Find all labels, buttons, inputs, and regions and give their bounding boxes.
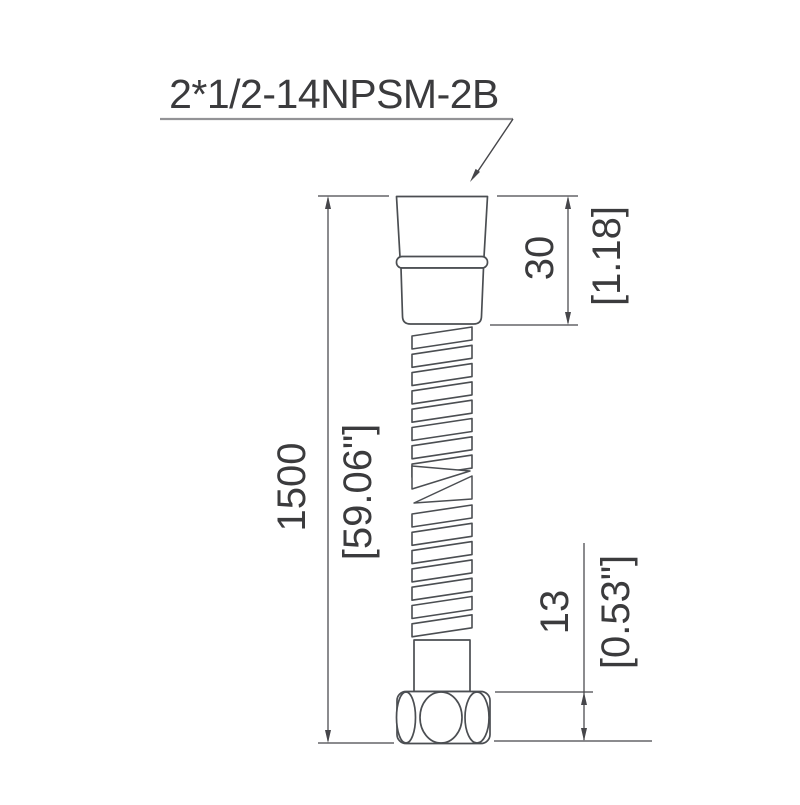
hose-band: [412, 382, 472, 404]
top-fitting-lower-cone: [401, 268, 484, 324]
part-label: 2*1/2-14NPSM-2B: [169, 71, 499, 117]
hose-band: [412, 523, 472, 545]
hose-band: [412, 327, 472, 349]
dim-nut-inch: [0.53"]: [594, 555, 638, 669]
arrow-down-icon: [565, 312, 571, 325]
dim-nut-mm: 13: [533, 590, 577, 635]
bottom-nut-facet-left: [397, 692, 416, 743]
technical-drawing-canvas: 2*1/2-14NPSM-2B 1500 [59.06"]: [0, 0, 800, 800]
hose-band: [412, 400, 472, 422]
break-symbol: [412, 466, 472, 503]
hose-band: [412, 578, 472, 600]
bottom-end: [397, 640, 491, 744]
hose-band: [412, 505, 472, 527]
top-fitting-ring: [397, 257, 488, 269]
dimension-overall-length: 1500 [59.06"]: [270, 196, 394, 743]
arrow-down-icon: [581, 728, 587, 741]
hose-band: [412, 437, 472, 459]
hose-band: [412, 560, 472, 582]
dim-fitting-inch: [1.18]: [585, 206, 629, 306]
bottom-nut-facet-center: [420, 692, 462, 743]
hose-band: [412, 345, 472, 367]
technical-drawing-page: 2*1/2-14NPSM-2B 1500 [59.06"]: [0, 0, 800, 800]
arrow-up-icon: [565, 196, 571, 209]
dimension-top-fitting: 30 [1.18]: [490, 196, 629, 325]
leader-line: [474, 119, 513, 177]
hose-band: [412, 419, 472, 441]
top-fitting: [397, 197, 488, 325]
hose-band: [412, 364, 472, 386]
part-label-group: 2*1/2-14NPSM-2B: [160, 71, 513, 182]
dim-fitting-mm: 30: [518, 236, 562, 281]
arrow-up-icon: [325, 196, 331, 209]
bottom-nut-facet-right: [465, 692, 489, 743]
hose-band: [412, 542, 472, 564]
hose-band: [412, 597, 472, 619]
hose-band: [412, 615, 472, 637]
dimension-bottom-nut: 13 [0.53"]: [494, 543, 652, 741]
ferrule: [414, 640, 470, 692]
arrow-up-icon: [581, 692, 587, 705]
arrow-down-icon: [325, 730, 331, 743]
dim-overall-mm: 1500: [270, 443, 314, 532]
dim-overall-inch: [59.06"]: [336, 424, 380, 561]
top-fitting-upper-cone: [397, 197, 488, 258]
